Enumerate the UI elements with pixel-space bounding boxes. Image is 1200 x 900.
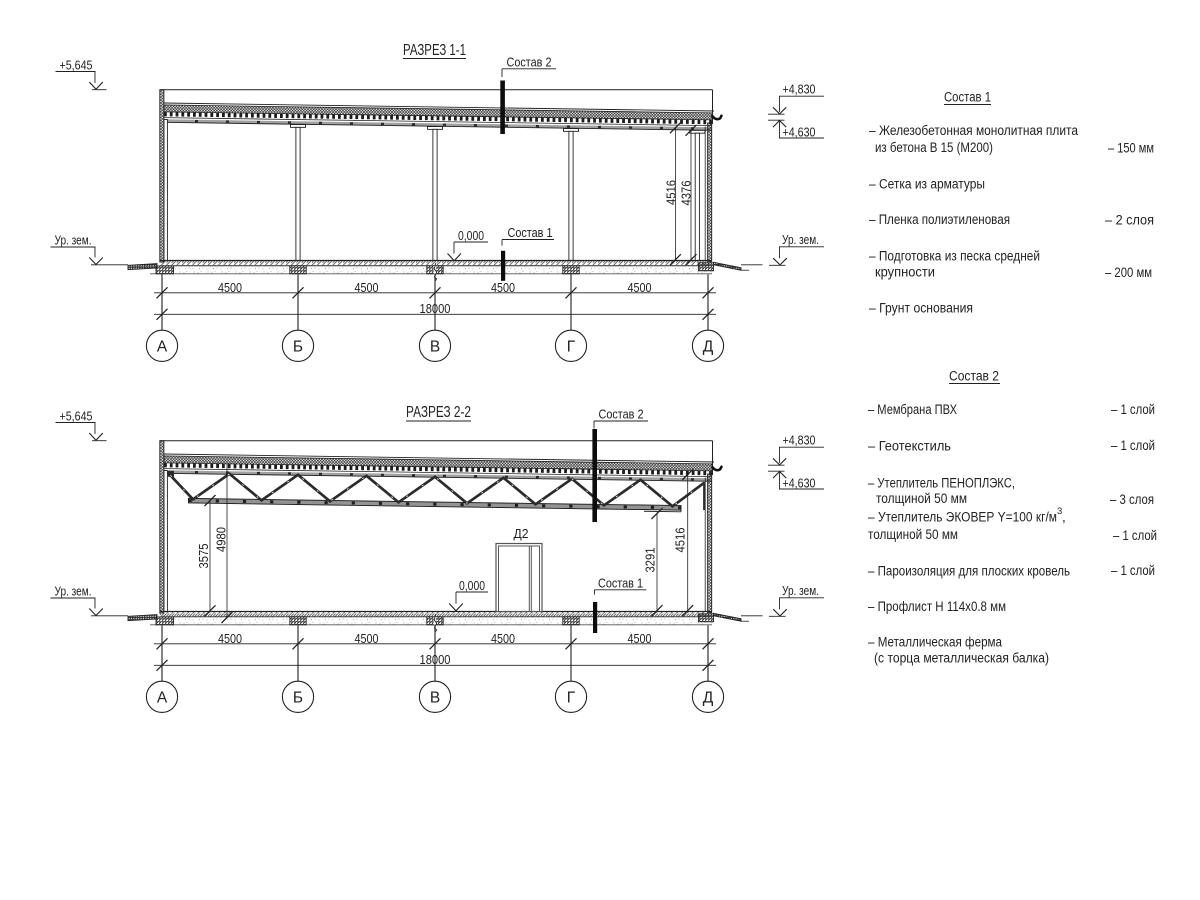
svg-text:– 1 слой: – 1 слой [1111, 438, 1155, 453]
svg-text:– Утеплитель ПЕНОПЛЭКС,: – Утеплитель ПЕНОПЛЭКС, [868, 476, 1015, 491]
svg-text:В: В [430, 338, 440, 355]
svg-text:Состав 2: Состав 2 [949, 369, 999, 384]
svg-text:Д: Д [703, 689, 714, 706]
svg-text:(с торца металлическая балка): (с торца металлическая балка) [874, 651, 1049, 666]
svg-text:0,000: 0,000 [458, 229, 484, 243]
svg-text:– Утеплитель ЭКОВЕР Y=100 кг/м: – Утеплитель ЭКОВЕР Y=100 кг/м [868, 510, 1057, 525]
svg-text:из бетона В 15 (М200): из бетона В 15 (М200) [875, 140, 993, 155]
svg-text:– Пароизоляция для плоских кро: – Пароизоляция для плоских кровель [868, 564, 1070, 579]
svg-text:– 200 мм: – 200 мм [1105, 265, 1152, 280]
svg-text:– Железобетонная монолитная п: – Железобетонная монолитная плита [869, 123, 1078, 138]
svg-text:– 3 слоя: – 3 слоя [1110, 492, 1154, 507]
svg-text:толщиной 50 мм: толщиной 50 мм [868, 527, 958, 542]
svg-text:4500: 4500 [491, 631, 515, 646]
svg-text:– Геотекстиль: – Геотекстиль [868, 439, 951, 454]
svg-text:Состав 2: Состав 2 [599, 407, 644, 422]
svg-text:Г: Г [567, 689, 576, 706]
svg-text:+4,830: +4,830 [783, 83, 816, 97]
svg-text:+4,830: +4,830 [783, 434, 816, 448]
svg-text:Ур. зем.: Ур. зем. [782, 233, 819, 247]
svg-text:В: В [430, 689, 440, 706]
svg-text:крупности: крупности [875, 265, 935, 280]
svg-text:18000: 18000 [420, 652, 451, 667]
svg-text:Г: Г [567, 338, 576, 355]
svg-text:4516: 4516 [674, 527, 688, 552]
svg-text:4516: 4516 [665, 180, 679, 205]
svg-text:4376: 4376 [680, 180, 694, 205]
svg-text:Б: Б [293, 689, 303, 706]
svg-text:+4,630: +4,630 [783, 477, 816, 491]
svg-text:Ур. зем.: Ур. зем. [55, 234, 92, 248]
svg-text:Б: Б [293, 338, 303, 355]
svg-text:4500: 4500 [355, 631, 379, 646]
svg-text:4980: 4980 [214, 527, 228, 552]
svg-text:Ур. зем.: Ур. зем. [782, 584, 819, 598]
svg-text:– 150 мм: – 150 мм [1108, 141, 1154, 156]
svg-text:РАЗРЕЗ 1-1: РАЗРЕЗ 1-1 [403, 42, 466, 59]
svg-text:толщиной 50 мм: толщиной 50 мм [876, 491, 967, 506]
svg-text:Д: Д [703, 338, 714, 355]
svg-text:4500: 4500 [628, 280, 652, 295]
svg-text:3291: 3291 [644, 547, 658, 572]
svg-text:– Профлист Н 114х0.8 мм: – Профлист Н 114х0.8 мм [868, 599, 1006, 614]
svg-text:А: А [157, 338, 168, 355]
svg-text:Д2: Д2 [514, 526, 529, 541]
svg-text:– 1 слой: – 1 слой [1111, 402, 1155, 417]
svg-text:+4,630: +4,630 [783, 126, 816, 140]
svg-text:Состав 1: Состав 1 [944, 90, 991, 105]
svg-text:18000: 18000 [420, 301, 451, 316]
svg-text:– Металлическая ферма: – Металлическая ферма [868, 635, 1002, 650]
svg-text:4500: 4500 [491, 280, 515, 295]
svg-text:Состав 1: Состав 1 [598, 576, 643, 591]
svg-text:РАЗРЕЗ 2-2: РАЗРЕЗ 2-2 [406, 404, 471, 421]
svg-text:– Грунт основания: – Грунт основания [869, 301, 973, 316]
svg-text:– 1 слой: – 1 слой [1111, 563, 1155, 578]
svg-text:4500: 4500 [218, 631, 242, 646]
svg-text:4500: 4500 [628, 631, 652, 646]
svg-text:3575: 3575 [197, 543, 211, 568]
svg-text:+5,645: +5,645 [60, 59, 93, 73]
svg-text:– 1 слой: – 1 слой [1113, 528, 1157, 543]
svg-text:Состав 1: Состав 1 [508, 225, 553, 240]
svg-text:0,000: 0,000 [459, 579, 485, 593]
svg-text:А: А [157, 689, 168, 706]
svg-text:4500: 4500 [218, 280, 242, 295]
svg-text:4500: 4500 [355, 280, 379, 295]
svg-text:– Мембрана ПВХ: – Мембрана ПВХ [868, 402, 957, 417]
svg-text:– Пленка полиэтиленовая: – Пленка полиэтиленовая [869, 212, 1010, 227]
svg-text:+5,645: +5,645 [60, 410, 93, 424]
svg-text:– 2 слоя: – 2 слоя [1105, 213, 1154, 228]
svg-text:,: , [1062, 510, 1066, 525]
svg-text:Состав 2: Состав 2 [507, 55, 552, 70]
svg-text:– Подготовка из песка средней: – Подготовка из песка средней [869, 249, 1040, 264]
svg-text:– Сетка из арматуры: – Сетка из арматуры [869, 177, 985, 192]
svg-text:Ур. зем.: Ур. зем. [55, 585, 92, 599]
